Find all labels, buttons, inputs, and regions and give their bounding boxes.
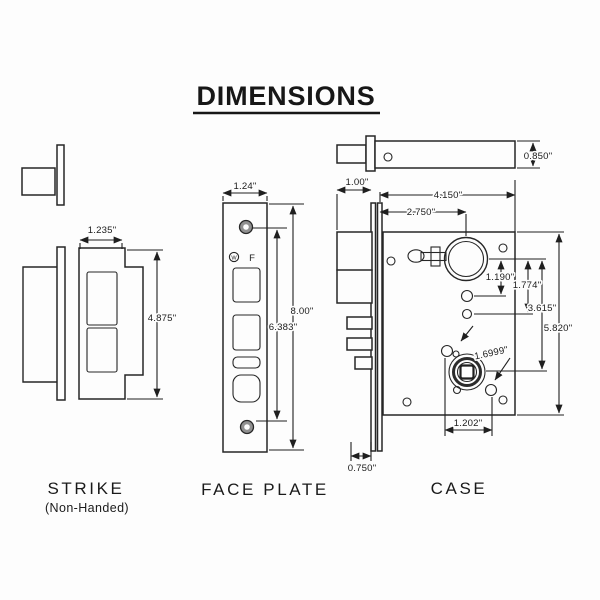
case-height-dim: 5.820"	[544, 323, 573, 334]
cyl-to-hub-dim: 3.615"	[528, 303, 557, 314]
face-plate-label: FACE PLATE	[201, 480, 329, 499]
fire-rating-mark: F	[249, 253, 255, 264]
faceplate-width-dim: 1.24"	[233, 181, 256, 192]
strike-side-profile-view	[23, 247, 65, 400]
strike-height-dim: 4.875"	[148, 313, 177, 324]
bolt-projection-dim: 1.00"	[345, 177, 368, 188]
aux-bolt-upper	[347, 317, 372, 329]
case-bolts	[337, 232, 372, 369]
strike-front-view	[79, 248, 143, 399]
case-top-edge-dimensions: 0.850"	[517, 141, 552, 168]
dimensions-drawing-page: DIMENSIONS 1.235" 4.875" STRIKE (Non-Han…	[0, 0, 600, 600]
faceplate-outer-height-dim: 8.00"	[290, 306, 313, 317]
cyl-to-hole1-dim: 1.190"	[486, 272, 515, 283]
technical-drawing: DIMENSIONS 1.235" 4.875" STRIKE (Non-Han…	[0, 0, 600, 600]
faceplate-inner-height-dim: 6.383"	[269, 322, 298, 333]
body-length-dim: 4.150"	[434, 190, 463, 201]
deadbolt-face	[355, 357, 372, 369]
page-title-group: DIMENSIONS	[193, 81, 380, 113]
case-label: CASE	[431, 479, 488, 498]
hub-hole-span-dim: 1.202"	[454, 418, 483, 429]
page-title: DIMENSIONS	[196, 81, 375, 111]
cyl-to-hole2-dim: 1.774"	[513, 280, 542, 291]
face-plate-view: W F	[223, 203, 267, 452]
ul-mark-letter: W	[231, 255, 237, 261]
strike-width-dim: 1.235"	[88, 225, 117, 236]
faceplate-edge-dim: 0.750"	[348, 463, 377, 474]
case-thickness-dim: 0.850"	[524, 151, 553, 162]
backset-dim: 2.750"	[407, 207, 436, 218]
case-top-edge-view	[337, 136, 515, 171]
strike-sublabel: (Non-Handed)	[45, 501, 129, 515]
strike-side-top-view	[22, 145, 64, 205]
aux-bolt-lower	[347, 338, 372, 350]
strike-label: STRIKE	[47, 479, 124, 498]
latch-bolt	[337, 232, 372, 303]
